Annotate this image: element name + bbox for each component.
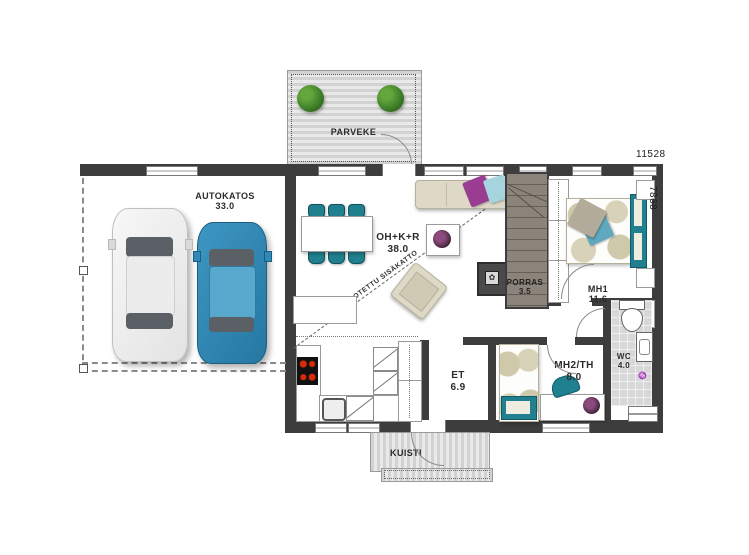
car-mirror: [264, 251, 272, 262]
room-area: 4.0: [618, 361, 630, 370]
appliance-diagonal: [346, 396, 374, 419]
car-roof: [126, 256, 175, 316]
dining-table: [301, 216, 373, 252]
headboard-panel: [634, 199, 642, 226]
wall-et-mh2: [488, 340, 496, 420]
wardrobe-dotted-line: [558, 182, 559, 300]
table-plant-icon: [433, 230, 451, 248]
room-name: WC: [617, 352, 631, 361]
microwave-cabinet: [373, 371, 398, 395]
stair-winder-line: [505, 183, 547, 203]
car-rear-window: [126, 313, 173, 329]
room-label-ohkr: OH+K+R 38.0: [363, 232, 433, 255]
window: [572, 166, 602, 176]
floor-plan: PARVEKE AUTOKATOS 33.0: [0, 0, 749, 555]
car-mirror: [108, 239, 116, 250]
oven-cabinet: [373, 347, 398, 371]
foot-panel-inner: [506, 401, 530, 414]
window: [466, 166, 504, 176]
room-name: OH+K+R: [376, 232, 420, 243]
upper-cabinet-line: [296, 336, 418, 337]
cabinet-dotted-line: [409, 345, 410, 418]
white-car-icon: [112, 208, 188, 362]
dimension-height: 7868: [647, 186, 658, 210]
wc-door-arc: [576, 308, 605, 337]
window: [628, 406, 658, 422]
room-name: ET: [451, 370, 465, 381]
appliance-diagonal: [373, 372, 398, 393]
car-roof: [209, 266, 256, 320]
room-label-et: ET 6.9: [436, 370, 480, 393]
kitchen-island: [293, 296, 357, 324]
nightstand: [636, 268, 655, 288]
car-windshield: [209, 249, 254, 267]
car-mirror: [185, 239, 193, 250]
car-rear-window: [209, 317, 254, 332]
window: [542, 423, 590, 433]
headboard-panel: [634, 233, 642, 260]
cabinet-divider: [399, 380, 421, 381]
carport-post: [79, 266, 88, 275]
armchair-seat: [399, 271, 440, 312]
plant-icon: [377, 85, 404, 112]
cooktop: [297, 357, 318, 385]
bed-headboard: [630, 194, 647, 268]
window: [633, 166, 657, 176]
dishwasher: [346, 396, 374, 421]
room-label-porras: PORRAS 3.5: [503, 278, 547, 296]
room-name: PARVEKE: [331, 127, 376, 137]
carport-post: [79, 364, 88, 373]
room-area: 3.5: [519, 287, 531, 296]
sofa-seat-line: [446, 183, 447, 206]
window: [424, 166, 464, 176]
room-label-wc: WC 4.0: [607, 352, 641, 370]
bed-foot-panel: [501, 396, 537, 420]
fireplace-door: ✿: [485, 271, 499, 285]
porch-edge-dots: [384, 470, 490, 479]
window: [146, 166, 198, 176]
kitchen-sink: [322, 398, 346, 421]
room-area: 38.0: [387, 244, 408, 255]
room-area: 33.0: [215, 201, 234, 211]
car-windshield: [126, 237, 173, 257]
desk-plant-icon: [583, 397, 600, 414]
balcony-door-opening: [382, 164, 416, 176]
room-label-autokatos: AUTOKATOS 33.0: [180, 191, 270, 212]
room-name: PORRAS: [507, 278, 544, 287]
room-label-parveke: PARVEKE: [287, 127, 420, 137]
tall-cabinet-fridge: [398, 341, 422, 422]
window: [315, 423, 347, 433]
blue-car-icon: [197, 222, 267, 364]
room-area: 6.9: [450, 382, 465, 393]
plant-icon: [297, 85, 324, 112]
room-name: AUTOKATOS: [195, 191, 255, 201]
car-mirror: [193, 251, 201, 262]
carport-boundary-bottom2: [82, 370, 286, 372]
dimension-width: 11528: [636, 149, 666, 160]
window: [318, 166, 366, 176]
appliance-diagonal: [373, 348, 398, 369]
